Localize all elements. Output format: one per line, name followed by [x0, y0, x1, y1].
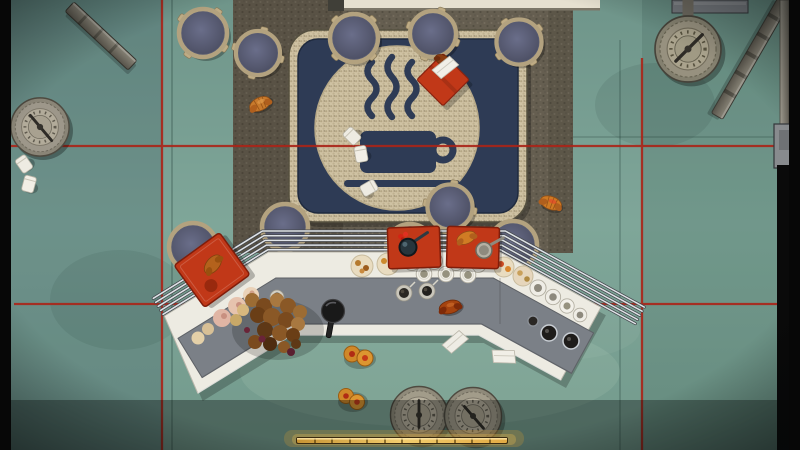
letterbox-right	[789, 0, 800, 450]
letterbox-left	[0, 0, 11, 450]
vignette	[0, 0, 800, 450]
progress-shine	[297, 438, 507, 440]
game-viewport	[0, 0, 800, 450]
cafe-scene	[0, 0, 800, 450]
progress-bar	[284, 430, 524, 447]
